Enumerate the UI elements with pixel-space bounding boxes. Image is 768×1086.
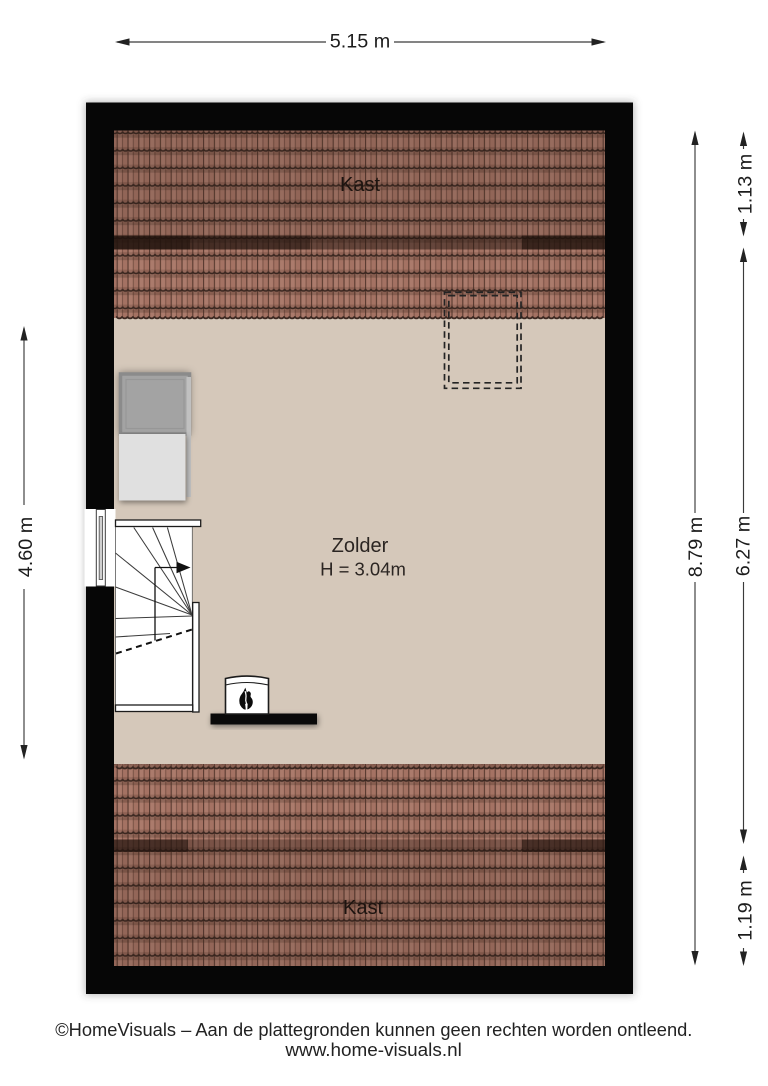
svg-text:©HomeVisuals – Aan de plattegr: ©HomeVisuals – Aan de plattegronden kunn… [55,1019,692,1040]
svg-text:1.13 m: 1.13 m [735,154,757,214]
svg-text:5.15 m: 5.15 m [330,31,390,53]
svg-text:1.19 m: 1.19 m [735,880,757,940]
svg-text:H = 3.04m: H = 3.04m [320,559,406,580]
svg-text:Kast: Kast [343,897,383,919]
svg-text:6.27 m: 6.27 m [733,516,755,576]
svg-text:www.home-visuals.nl: www.home-visuals.nl [284,1040,461,1061]
svg-text:Zolder: Zolder [332,535,389,557]
svg-text:Kast: Kast [340,174,380,196]
svg-text:4.60 m: 4.60 m [15,517,37,577]
svg-text:8.79 m: 8.79 m [685,517,707,577]
